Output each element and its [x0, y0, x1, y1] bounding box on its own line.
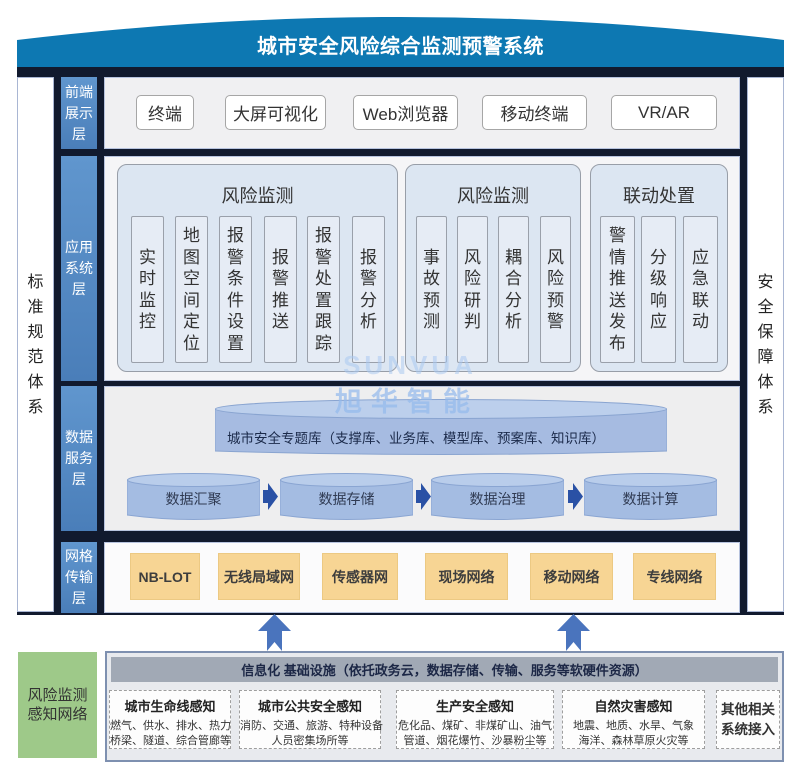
svg-text:数据存储: 数据存储 — [319, 491, 375, 507]
svg-text:数据汇聚: 数据汇聚 — [166, 491, 222, 507]
svg-text:数据治理: 数据治理 — [470, 491, 526, 507]
svg-text:数据计算: 数据计算 — [623, 491, 679, 507]
